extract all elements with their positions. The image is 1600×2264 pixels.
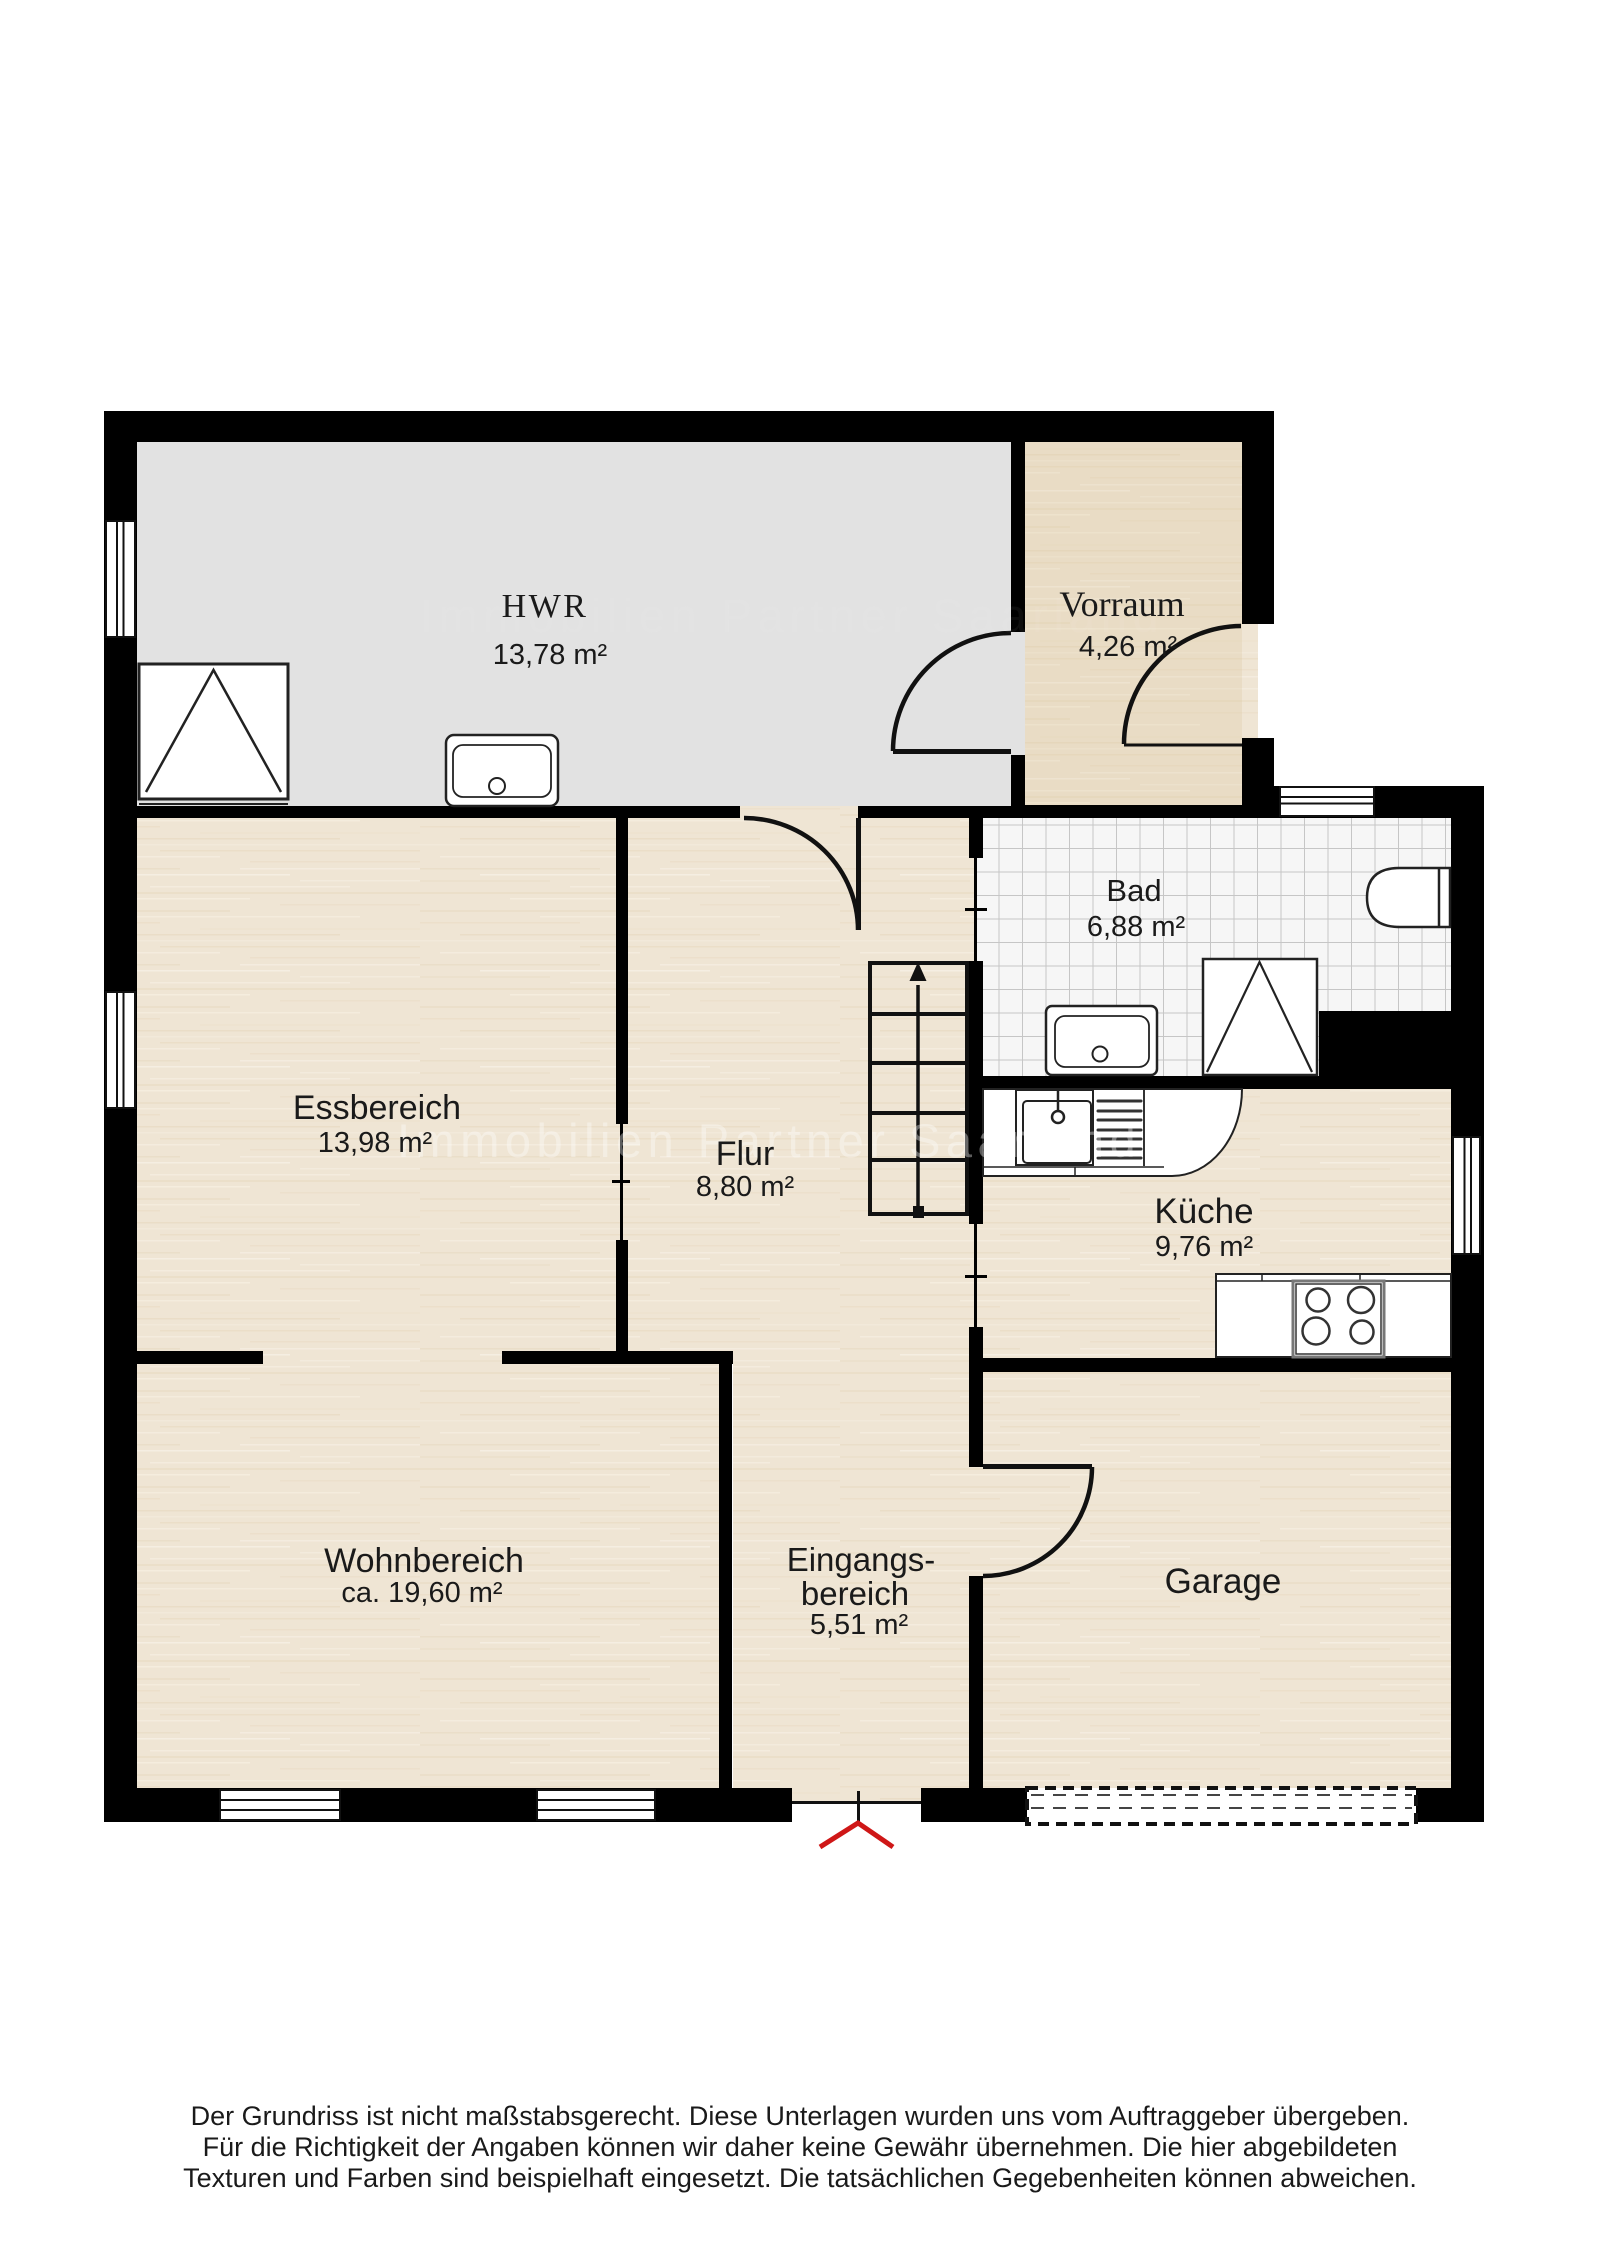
svg-text:HWR: HWR xyxy=(502,588,589,625)
svg-text:bereich: bereich xyxy=(801,1575,909,1612)
svg-text:Eingangs-: Eingangs- xyxy=(787,1541,936,1578)
svg-text:Garage: Garage xyxy=(1165,1562,1282,1601)
svg-text:Wohnbereich: Wohnbereich xyxy=(324,1542,524,1580)
svg-text:5,51 m²: 5,51 m² xyxy=(810,1609,909,1641)
svg-text:13,98 m²: 13,98 m² xyxy=(318,1127,433,1159)
svg-text:Küche: Küche xyxy=(1154,1192,1253,1231)
svg-text:Vorraum: Vorraum xyxy=(1059,584,1184,624)
svg-text:Texturen und Farben sind beisp: Texturen und Farben sind beispielhaft ei… xyxy=(183,2163,1417,2193)
svg-text:4,26 m²: 4,26 m² xyxy=(1079,631,1178,663)
svg-text:6,88 m²: 6,88 m² xyxy=(1087,911,1186,943)
svg-text:13,78 m²: 13,78 m² xyxy=(493,639,608,671)
svg-text:Für die Richtigkeit der Angabe: Für die Richtigkeit der Angaben können w… xyxy=(203,2132,1398,2162)
svg-text:Essbereich: Essbereich xyxy=(293,1089,461,1127)
svg-text:Flur: Flur xyxy=(716,1135,775,1173)
svg-text:9,76 m²: 9,76 m² xyxy=(1155,1231,1254,1263)
svg-text:Der Grundriss ist nicht maßsta: Der Grundriss ist nicht maßstabsgerecht.… xyxy=(191,2101,1410,2131)
svg-text:8,80 m²: 8,80 m² xyxy=(696,1171,795,1203)
svg-text:Bad: Bad xyxy=(1106,873,1161,908)
svg-text:ca. 19,60 m²: ca. 19,60 m² xyxy=(341,1577,503,1609)
